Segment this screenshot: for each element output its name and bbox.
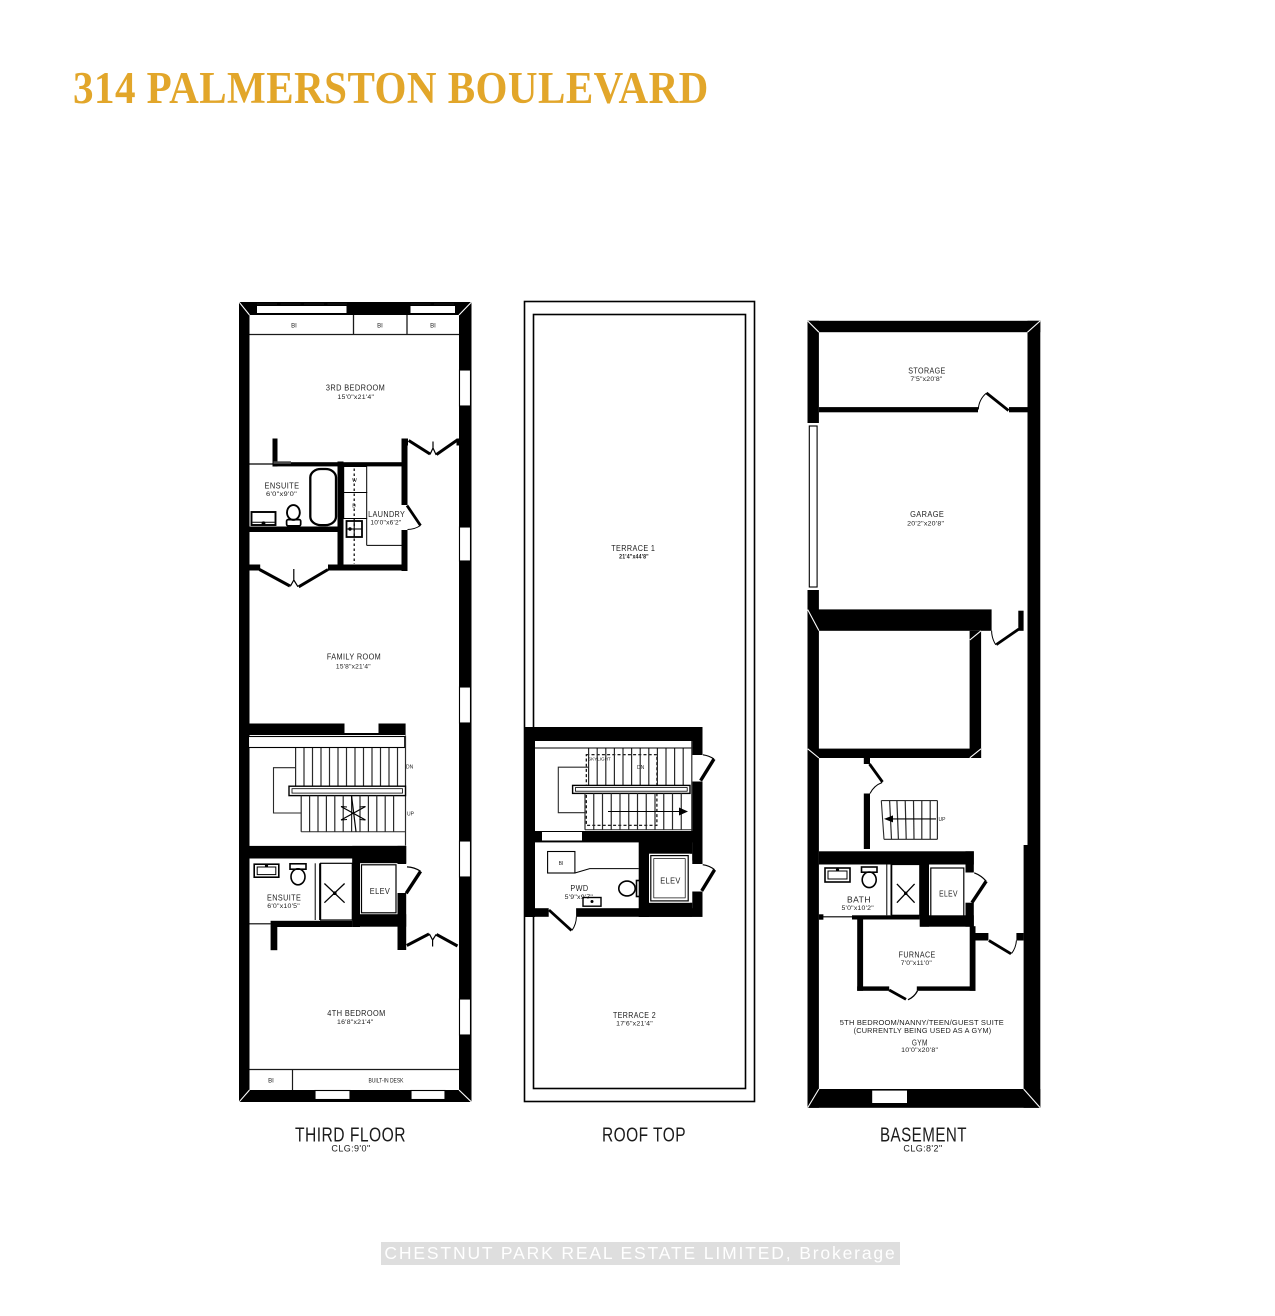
svg-text:STORAGE: STORAGE [908, 366, 945, 376]
svg-text:PWD: PWD [570, 883, 588, 893]
svg-text:20'2"x20'8": 20'2"x20'8" [907, 521, 944, 528]
svg-text:10'0"x20'8": 10'0"x20'8" [901, 1047, 938, 1054]
svg-text:ELEV: ELEV [370, 886, 391, 896]
svg-text:BI: BI [377, 324, 383, 330]
svg-text:15'0"x21'4": 15'0"x21'4" [337, 394, 374, 401]
svg-text:BI: BI [291, 324, 297, 330]
svg-text:BI: BI [268, 1079, 274, 1085]
svg-text:TERRACE 2: TERRACE 2 [613, 1010, 656, 1020]
svg-text:ENSUITE: ENSUITE [267, 893, 301, 903]
svg-text:FURNACE: FURNACE [899, 950, 936, 960]
svg-text:7'0"x11'0": 7'0"x11'0" [901, 960, 932, 967]
svg-text:UP: UP [407, 812, 415, 818]
svg-text:W: W [352, 478, 357, 484]
svg-text:BI: BI [430, 324, 436, 330]
svg-text:DN: DN [406, 765, 414, 771]
svg-text:16'8"x21'4": 16'8"x21'4" [337, 1019, 374, 1026]
svg-text:DN: DN [637, 765, 645, 771]
svg-text:ENSUITE: ENSUITE [265, 481, 300, 491]
svg-text:5'0"x10'2": 5'0"x10'2" [842, 905, 874, 912]
svg-text:GARAGE: GARAGE [910, 509, 944, 519]
svg-text:15'8"x21'4": 15'8"x21'4" [336, 664, 371, 671]
svg-text:D: D [352, 504, 356, 510]
svg-text:7'5"x20'8": 7'5"x20'8" [910, 376, 942, 383]
svg-text:3RD BEDROOM: 3RD BEDROOM [326, 383, 385, 393]
svg-text:BUILT-IN DESK: BUILT-IN DESK [369, 1079, 404, 1085]
svg-text:4TH BEDROOM: 4TH BEDROOM [327, 1008, 385, 1018]
svg-text:UP: UP [939, 817, 947, 823]
svg-text:6'0"x9'0": 6'0"x9'0" [266, 491, 297, 498]
svg-text:BI: BI [559, 861, 564, 867]
svg-text:10'0"x6'2": 10'0"x6'2" [370, 520, 401, 527]
svg-text:CLG:9'0": CLG:9'0" [331, 1144, 370, 1154]
svg-text:6'0"x10'5": 6'0"x10'5" [267, 903, 300, 910]
svg-text:SKYLIGHT: SKYLIGHT [588, 757, 611, 762]
svg-text:(CURRENTLY BEING USED AS A GYM: (CURRENTLY BEING USED AS A GYM) [854, 1026, 992, 1035]
svg-text:ROOF TOP: ROOF TOP [602, 1125, 686, 1147]
svg-text:FAMILY ROOM: FAMILY ROOM [327, 652, 381, 662]
svg-text:TERRACE 1: TERRACE 1 [611, 543, 655, 553]
svg-text:ELEV: ELEV [660, 876, 681, 886]
svg-text:GYM: GYM [912, 1037, 928, 1047]
svg-text:ELEV: ELEV [939, 889, 958, 899]
svg-text:21'4"x44'8": 21'4"x44'8" [619, 554, 649, 561]
svg-text:LAUNDRY: LAUNDRY [368, 509, 405, 519]
svg-text:BATH: BATH [847, 895, 871, 905]
svg-text:CLG:8'2": CLG:8'2" [903, 1144, 942, 1154]
svg-text:17'6"x21'4": 17'6"x21'4" [616, 1021, 653, 1028]
